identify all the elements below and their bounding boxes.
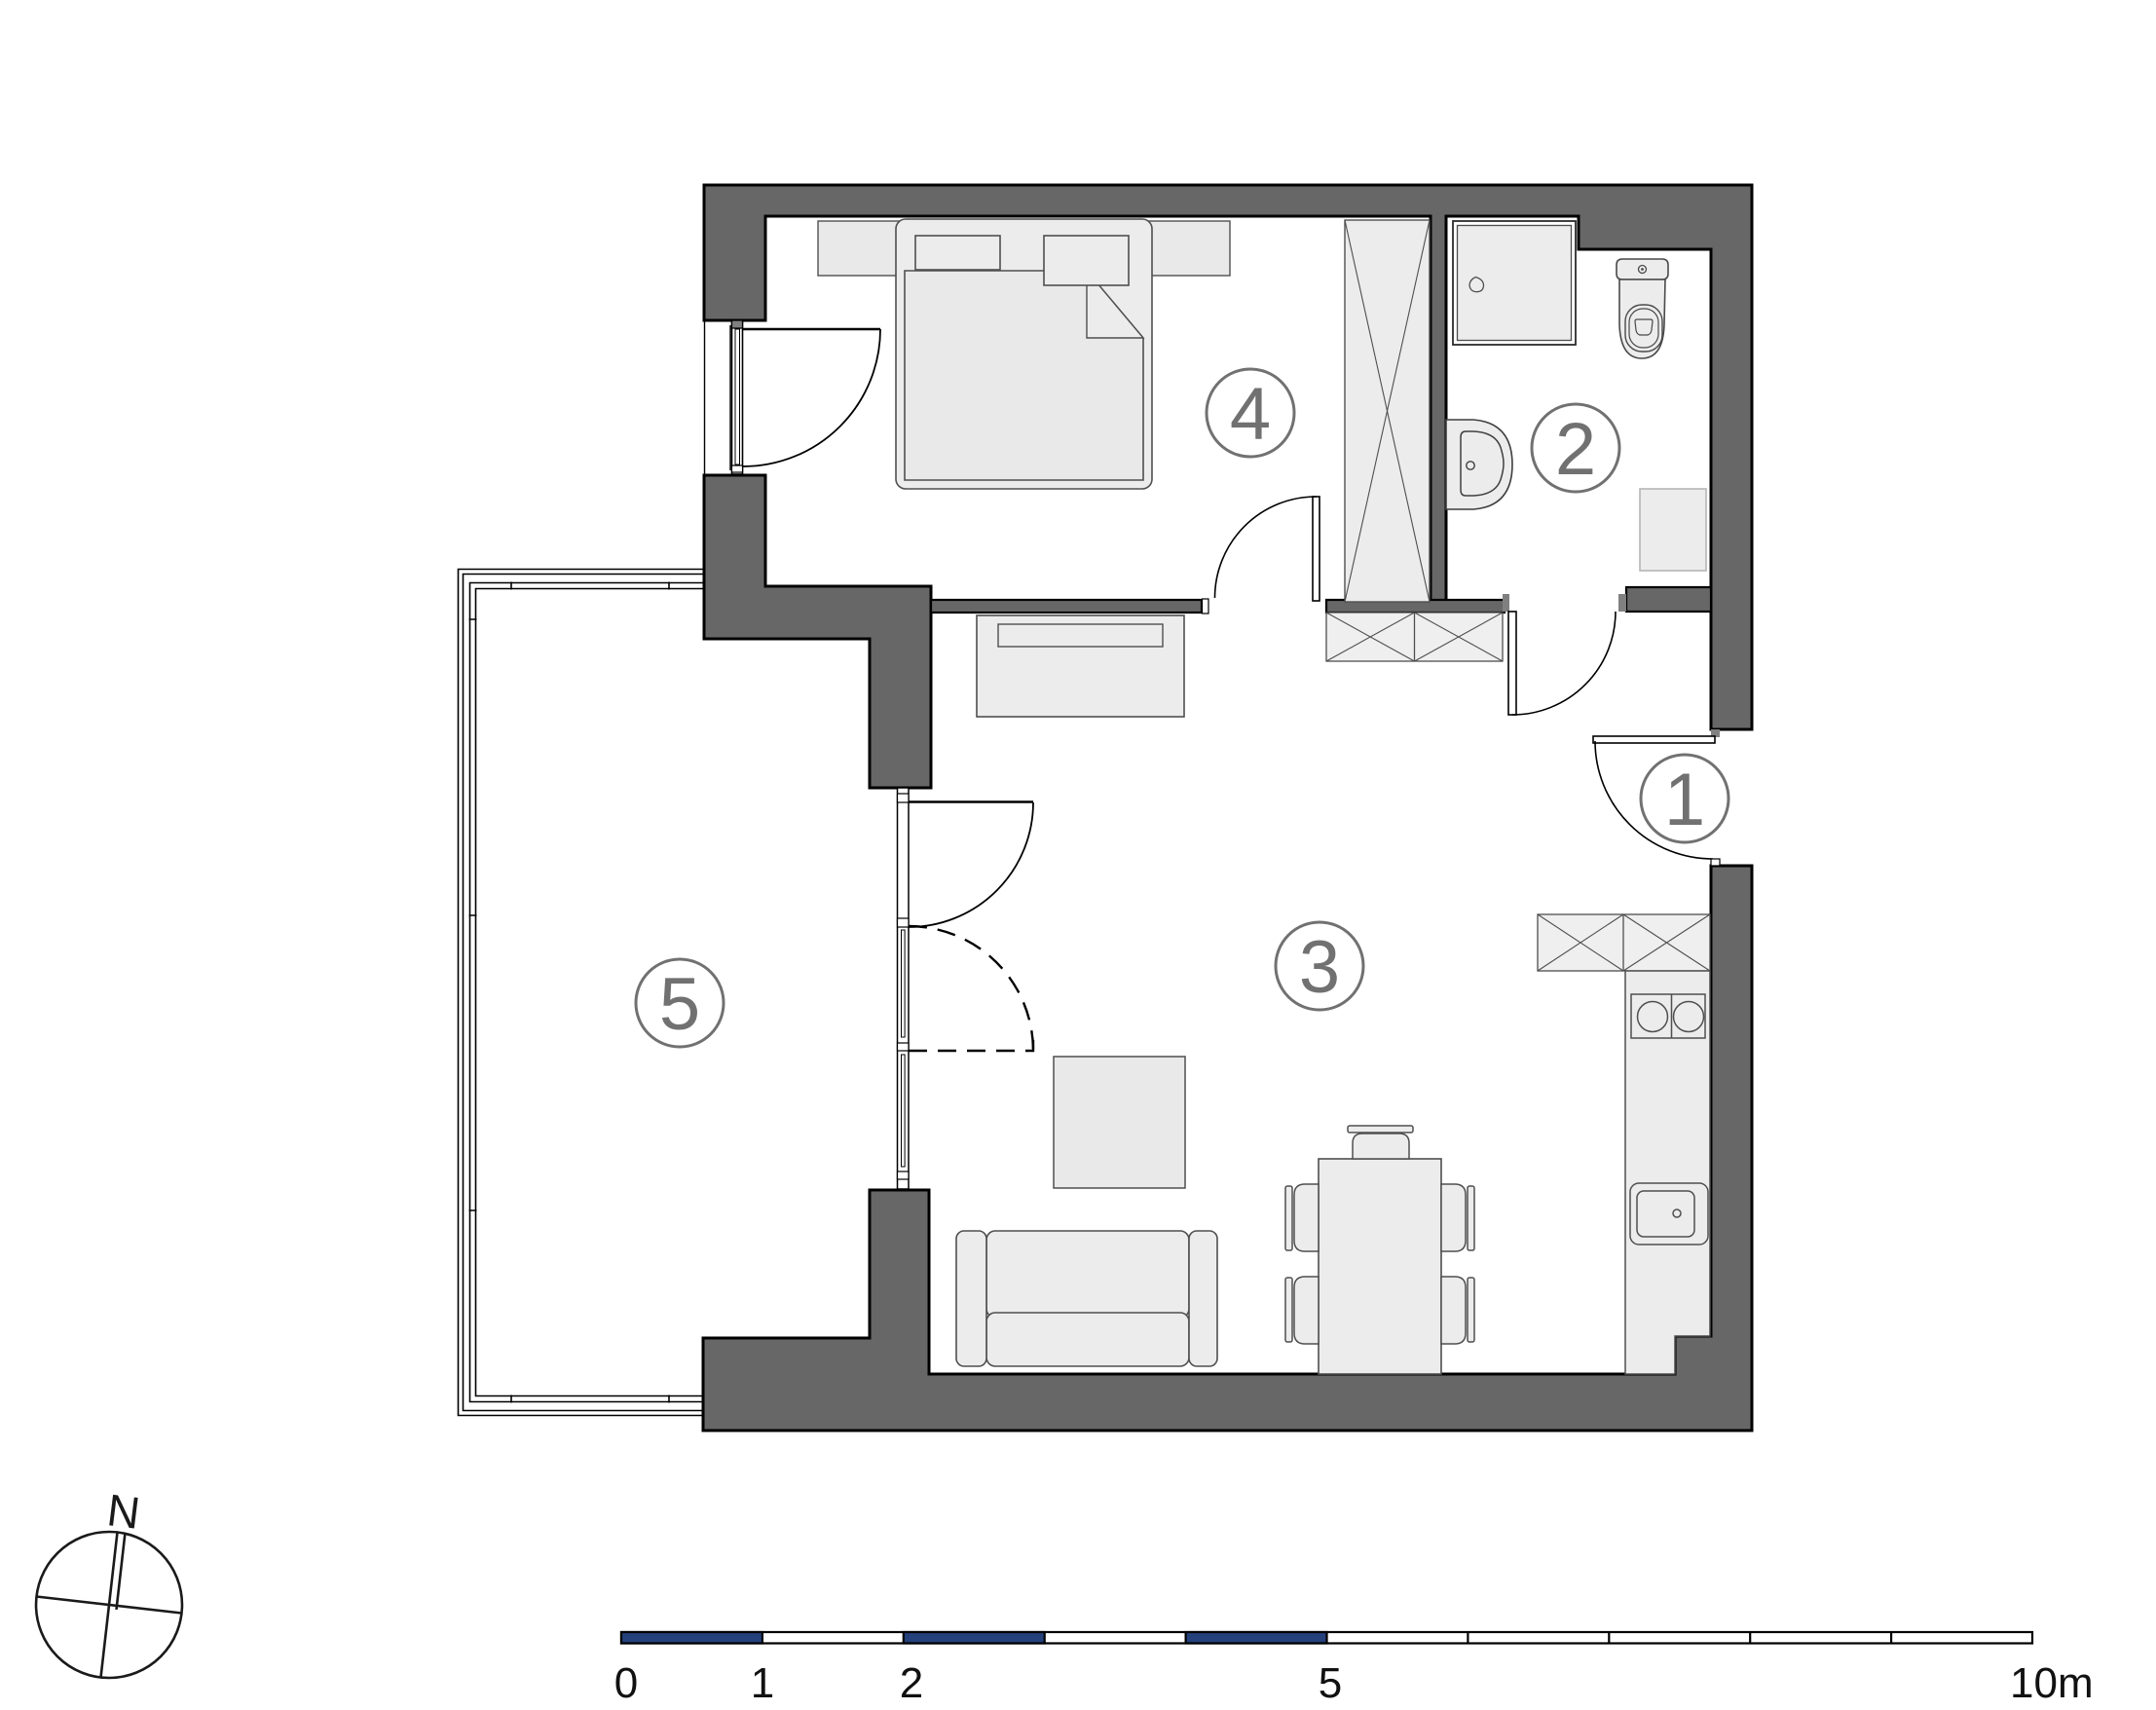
svg-text:3: 3 bbox=[1299, 926, 1340, 1009]
svg-text:0: 0 bbox=[614, 1659, 638, 1707]
svg-text:2: 2 bbox=[900, 1659, 923, 1707]
svg-text:4: 4 bbox=[1230, 373, 1271, 456]
svg-text:N: N bbox=[104, 1484, 142, 1539]
svg-text:5: 5 bbox=[659, 963, 700, 1046]
svg-text:2: 2 bbox=[1555, 408, 1596, 491]
svg-text:10m: 10m bbox=[2010, 1659, 2094, 1707]
svg-text:5: 5 bbox=[1319, 1659, 1342, 1707]
svg-text:1: 1 bbox=[1664, 759, 1705, 841]
svg-text:1: 1 bbox=[751, 1659, 774, 1707]
